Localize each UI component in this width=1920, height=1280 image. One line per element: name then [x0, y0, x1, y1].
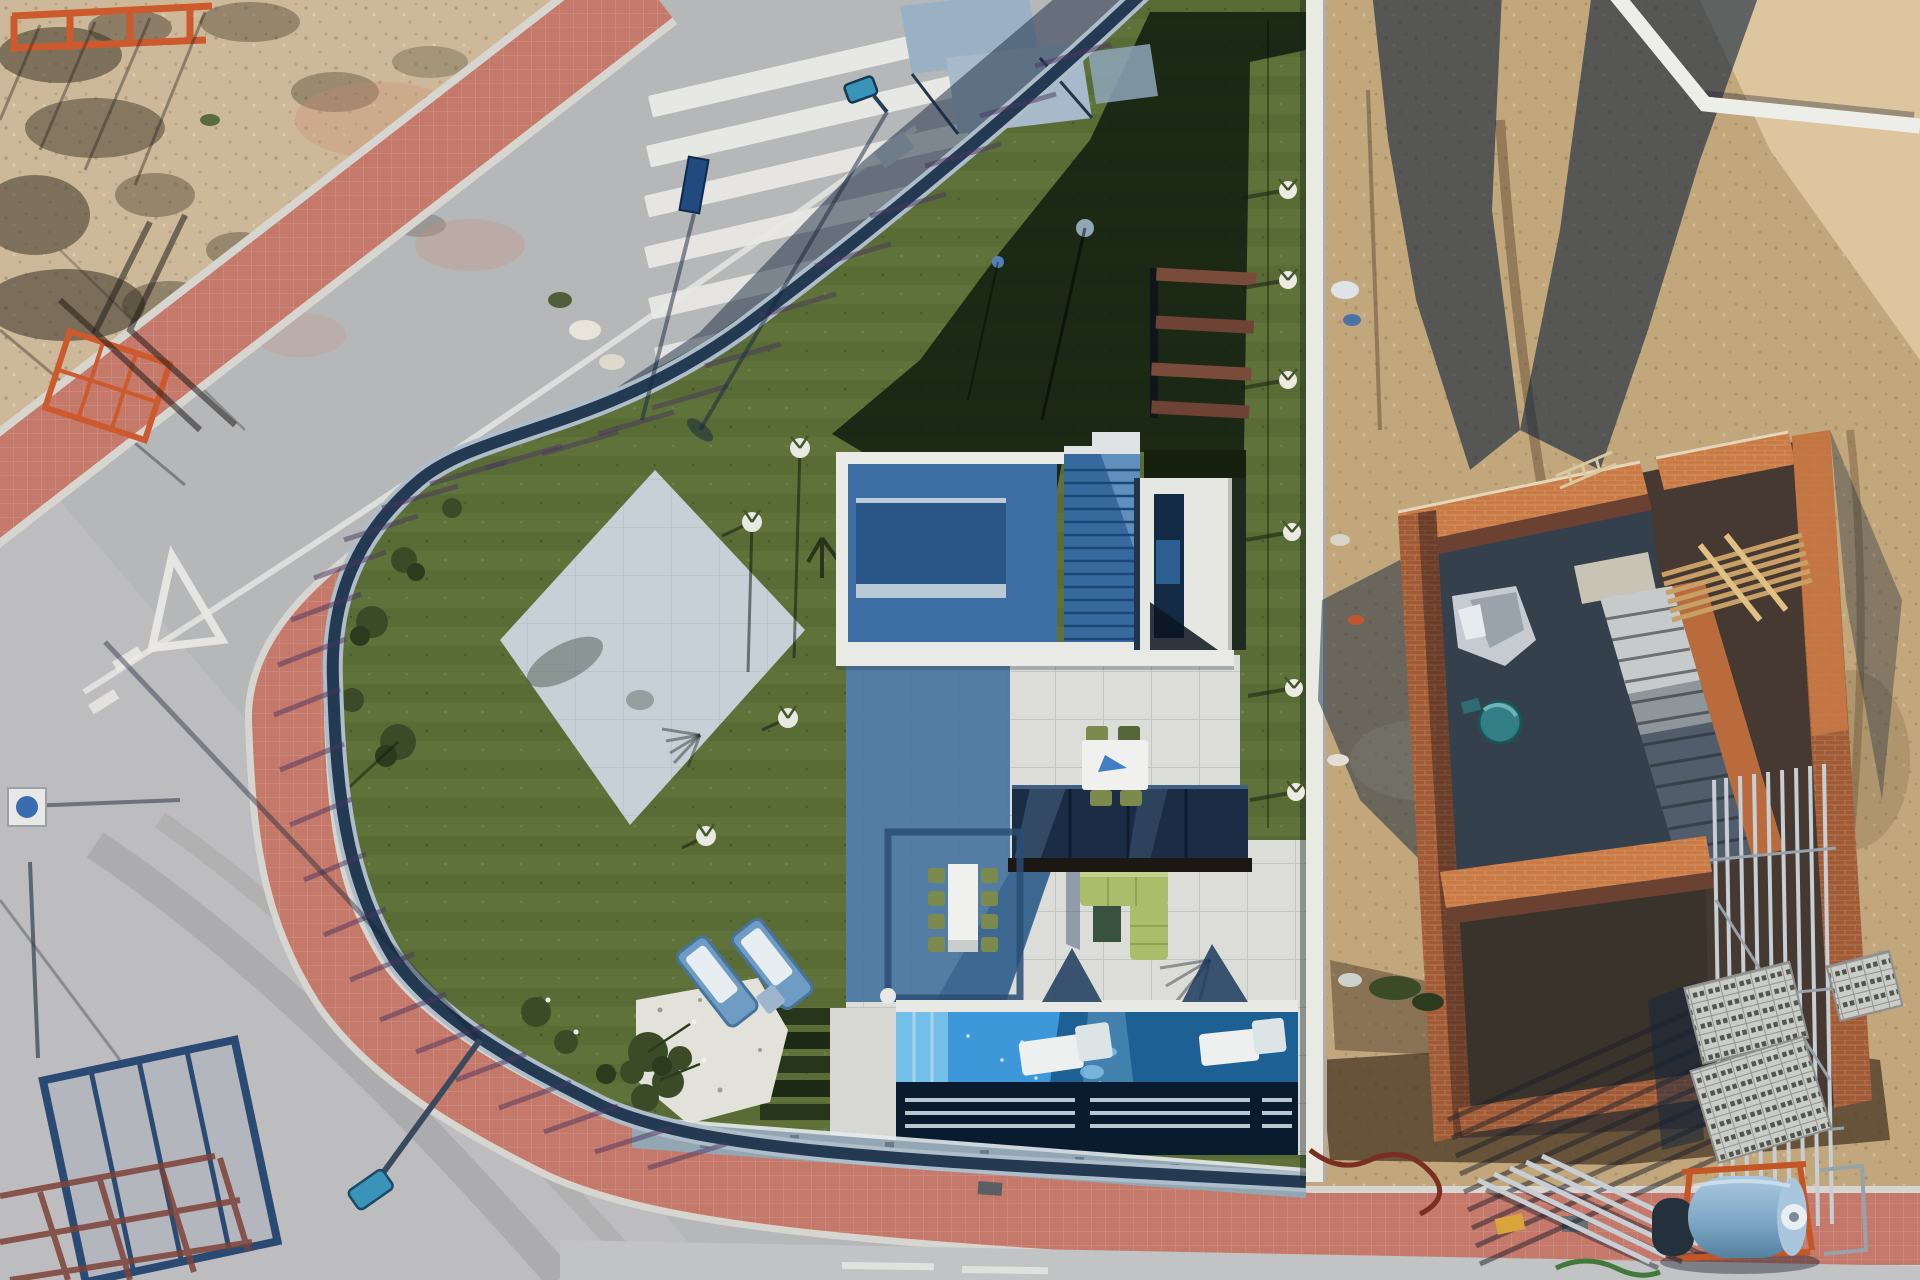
roof-stair: [1064, 432, 1140, 657]
aerial-photo: [0, 0, 1920, 1280]
skylight-tower: [1134, 478, 1246, 650]
gate-walk: [1088, 44, 1158, 104]
boundary-wall: [1300, 0, 1327, 1182]
drain: [978, 1181, 1003, 1196]
